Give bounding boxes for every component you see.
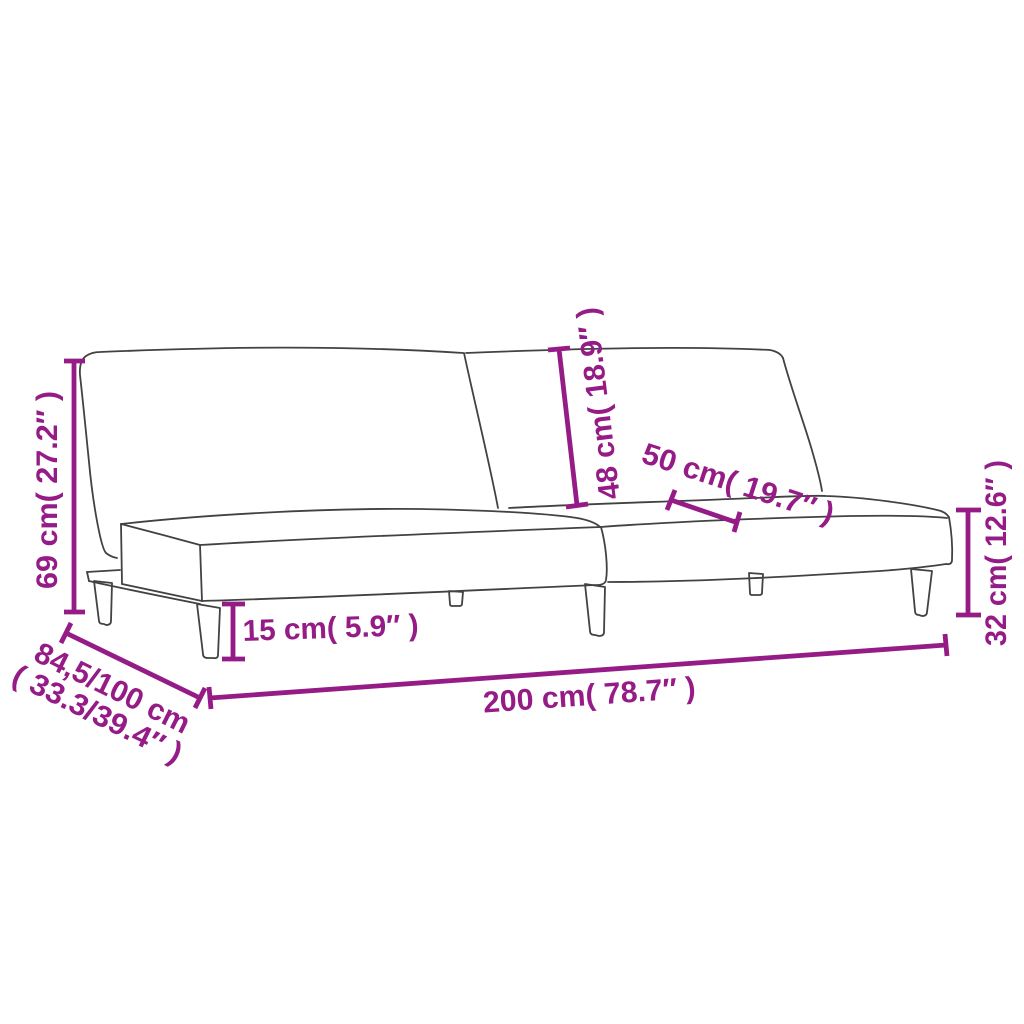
svg-text:69 cm( 27.2″ ): 69 cm( 27.2″ )	[31, 391, 64, 589]
svg-text:32 cm( 12.6″ ): 32 cm( 12.6″ )	[980, 460, 1013, 646]
svg-text:200 cm( 78.7″ ): 200 cm( 78.7″ )	[482, 671, 697, 719]
svg-text:15 cm( 5.9″ ): 15 cm( 5.9″ )	[242, 609, 419, 648]
svg-text:48 cm( 18.9″ ): 48 cm( 18.9″ )	[571, 306, 627, 502]
